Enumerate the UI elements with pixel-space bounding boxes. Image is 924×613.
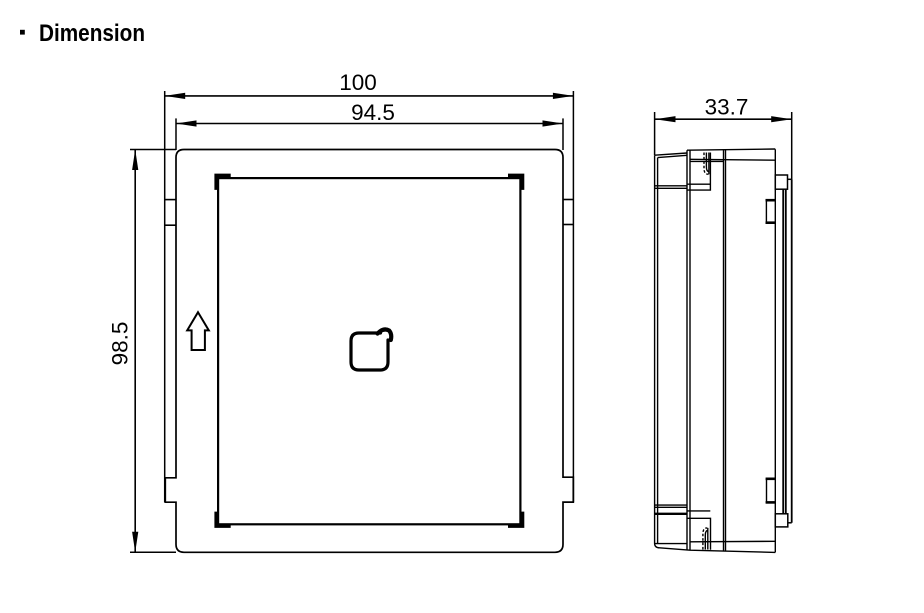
svg-text:94.5: 94.5 (351, 100, 395, 125)
svg-text:100: 100 (339, 70, 377, 95)
svg-text:98.5: 98.5 (108, 322, 133, 366)
svg-text:Dimension: Dimension (39, 20, 145, 47)
svg-text:33.7: 33.7 (705, 95, 749, 120)
